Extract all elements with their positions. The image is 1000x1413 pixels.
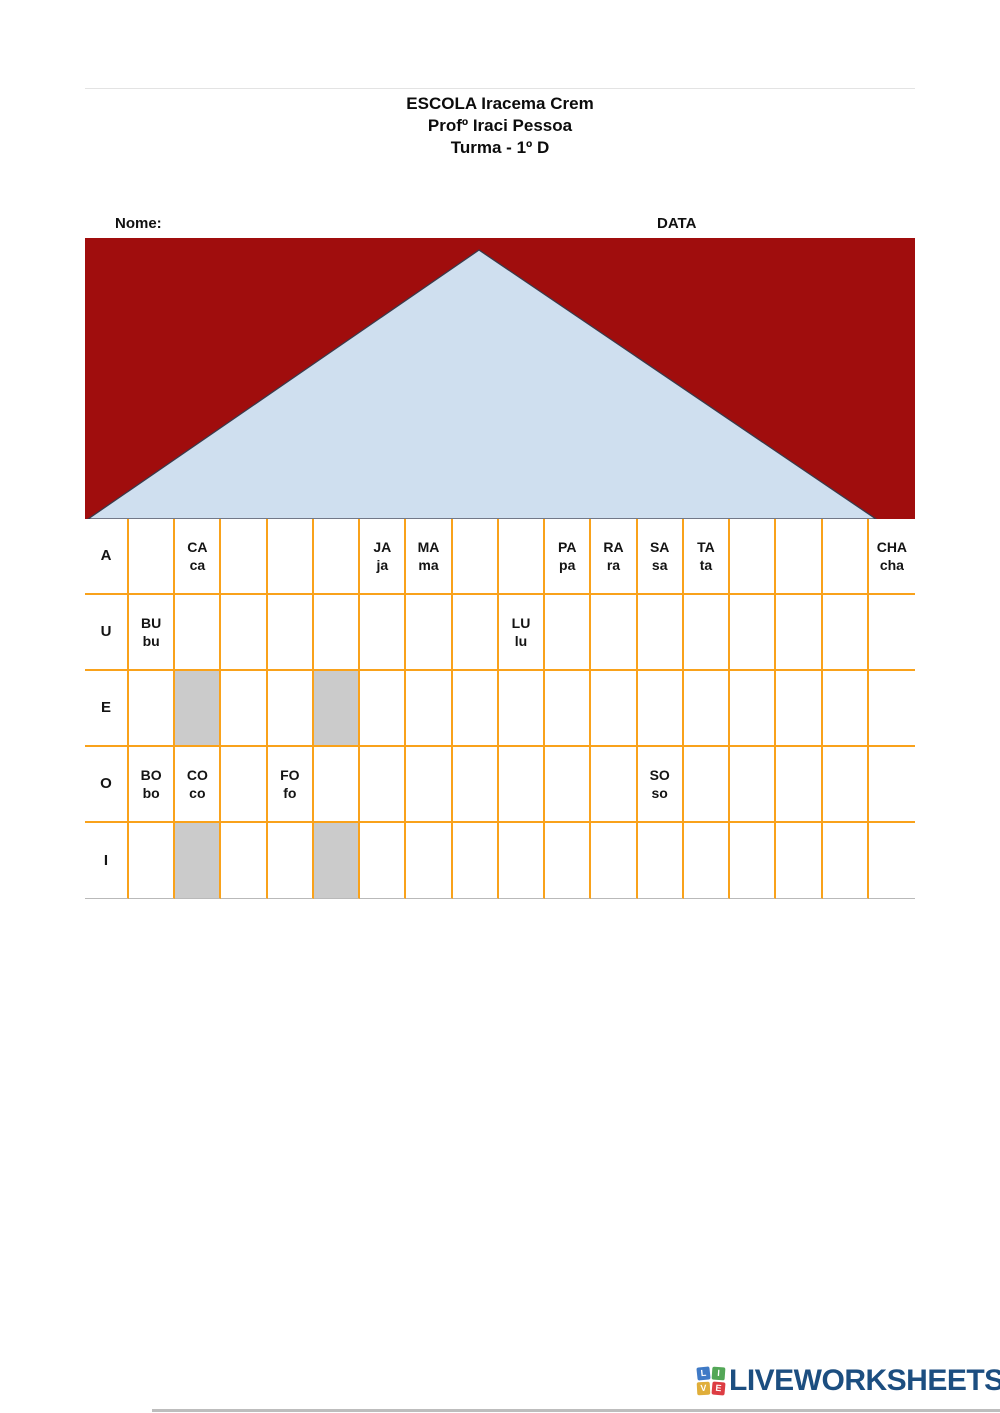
empty-answer-cell[interactable] <box>638 671 684 747</box>
empty-answer-cell[interactable] <box>823 747 869 823</box>
empty-answer-cell[interactable] <box>591 747 637 823</box>
syllable-text: TA <box>697 538 715 556</box>
logo-square-i: I <box>712 1366 726 1380</box>
highlight-cell[interactable] <box>314 823 360 899</box>
row-label-o: O <box>85 747 129 823</box>
empty-answer-cell[interactable] <box>453 519 499 595</box>
empty-answer-cell[interactable] <box>360 595 406 671</box>
logo-square-e: E <box>711 1381 725 1395</box>
empty-answer-cell[interactable] <box>869 823 915 899</box>
syllable-text: FO <box>280 766 299 784</box>
syllable-text: sa <box>652 556 668 574</box>
empty-answer-cell[interactable] <box>684 823 730 899</box>
empty-answer-cell[interactable] <box>406 595 452 671</box>
name-label: Nome: <box>115 215 162 232</box>
empty-answer-cell[interactable] <box>545 747 591 823</box>
empty-answer-cell[interactable] <box>869 595 915 671</box>
row-label-a: A <box>85 519 129 595</box>
row-label-e: E <box>85 671 129 747</box>
empty-answer-cell[interactable] <box>591 823 637 899</box>
bottom-edge-strip <box>152 1409 1000 1412</box>
syllable-text: CHA <box>877 538 907 556</box>
empty-answer-cell[interactable] <box>823 519 869 595</box>
empty-answer-cell[interactable] <box>453 747 499 823</box>
empty-answer-cell[interactable] <box>453 595 499 671</box>
worksheet-sheet: ESCOLA Iracema Crem Profº Iraci Pessoa T… <box>85 88 915 901</box>
empty-answer-cell[interactable] <box>545 595 591 671</box>
empty-answer-cell[interactable] <box>638 595 684 671</box>
syllable-cell-sa: SAsa <box>638 519 684 595</box>
empty-answer-cell[interactable] <box>499 671 545 747</box>
empty-answer-cell[interactable] <box>776 747 822 823</box>
liveworksheets-icon: LIVE <box>697 1367 726 1396</box>
empty-answer-cell[interactable] <box>360 747 406 823</box>
empty-answer-cell[interactable] <box>175 595 221 671</box>
row-label-u: U <box>85 595 129 671</box>
empty-answer-cell[interactable] <box>314 519 360 595</box>
empty-answer-cell[interactable] <box>221 595 267 671</box>
syllable-text: co <box>189 784 205 802</box>
row-label-i: I <box>85 823 129 899</box>
empty-answer-cell[interactable] <box>730 747 776 823</box>
empty-answer-cell[interactable] <box>360 671 406 747</box>
header-line-class: Turma - 1º D <box>85 137 915 159</box>
empty-answer-cell[interactable] <box>591 671 637 747</box>
liveworksheets-wordmark: LIVEWORKSHEETS <box>729 1366 1000 1396</box>
syllable-cell-ta: TAta <box>684 519 730 595</box>
roof-triangle-icon <box>85 238 915 519</box>
syllable-cell-bu: BUbu <box>129 595 175 671</box>
liveworksheets-logo[interactable]: LIVE LIVEWORKSHEETS <box>697 1366 1000 1396</box>
empty-answer-cell[interactable] <box>730 823 776 899</box>
syllable-text: ja <box>376 556 388 574</box>
school-header: ESCOLA Iracema Crem Profº Iraci Pessoa T… <box>85 93 915 159</box>
syllable-text: lu <box>515 632 527 650</box>
syllable-text: pa <box>559 556 575 574</box>
empty-answer-cell[interactable] <box>591 595 637 671</box>
empty-answer-cell[interactable] <box>499 519 545 595</box>
syllable-text: MA <box>418 538 440 556</box>
empty-answer-cell[interactable] <box>823 823 869 899</box>
syllable-table: ACAcaJAjaMAmaPApaRAraSAsaTAtaCHAchaUBUbu… <box>85 519 915 899</box>
empty-answer-cell[interactable] <box>268 519 314 595</box>
empty-answer-cell[interactable] <box>221 823 267 899</box>
empty-answer-cell[interactable] <box>499 747 545 823</box>
syllable-cell-ja: JAja <box>360 519 406 595</box>
empty-answer-cell[interactable] <box>406 747 452 823</box>
empty-answer-cell[interactable] <box>869 747 915 823</box>
empty-answer-cell[interactable] <box>730 595 776 671</box>
syllable-text: ma <box>418 556 438 574</box>
roof-banner <box>85 238 915 519</box>
syllable-text: LU <box>512 614 531 632</box>
syllable-cell-ra: RAra <box>591 519 637 595</box>
empty-answer-cell[interactable] <box>684 595 730 671</box>
syllable-text: JA <box>373 538 391 556</box>
empty-answer-cell[interactable] <box>406 823 452 899</box>
highlight-cell[interactable] <box>175 671 221 747</box>
empty-answer-cell[interactable] <box>776 519 822 595</box>
syllable-text: cha <box>880 556 904 574</box>
empty-answer-cell[interactable] <box>545 671 591 747</box>
highlight-cell[interactable] <box>314 671 360 747</box>
syllable-cell-fo: FOfo <box>268 747 314 823</box>
empty-answer-cell[interactable] <box>221 671 267 747</box>
syllable-text: ca <box>190 556 206 574</box>
empty-answer-cell[interactable] <box>268 823 314 899</box>
logo-square-l: L <box>696 1366 710 1380</box>
empty-answer-cell[interactable] <box>221 747 267 823</box>
empty-answer-cell[interactable] <box>730 519 776 595</box>
syllable-text: bo <box>143 784 160 802</box>
empty-answer-cell[interactable] <box>129 823 175 899</box>
empty-answer-cell[interactable] <box>684 671 730 747</box>
syllable-text: SA <box>650 538 669 556</box>
syllable-text: ta <box>700 556 712 574</box>
empty-answer-cell[interactable] <box>638 823 684 899</box>
worksheet-page: ESCOLA Iracema Crem Profº Iraci Pessoa T… <box>0 0 1000 1413</box>
empty-answer-cell[interactable] <box>268 671 314 747</box>
empty-answer-cell[interactable] <box>268 595 314 671</box>
syllable-text: fo <box>283 784 296 802</box>
syllable-cell-bo: BObo <box>129 747 175 823</box>
header-line-school: ESCOLA Iracema Crem <box>85 93 915 115</box>
empty-answer-cell[interactable] <box>869 671 915 747</box>
empty-answer-cell[interactable] <box>730 671 776 747</box>
empty-answer-cell[interactable] <box>314 747 360 823</box>
syllable-text: PA <box>558 538 576 556</box>
syllable-text: ra <box>607 556 620 574</box>
syllable-cell-pa: PApa <box>545 519 591 595</box>
syllable-cell-co: COco <box>175 747 221 823</box>
empty-answer-cell[interactable] <box>453 671 499 747</box>
empty-answer-cell[interactable] <box>823 595 869 671</box>
syllable-cell-ca: CAca <box>175 519 221 595</box>
empty-answer-cell[interactable] <box>684 747 730 823</box>
empty-answer-cell[interactable] <box>221 519 267 595</box>
empty-answer-cell[interactable] <box>776 671 822 747</box>
syllable-text: BO <box>141 766 162 784</box>
empty-answer-cell[interactable] <box>129 519 175 595</box>
empty-answer-cell[interactable] <box>499 823 545 899</box>
empty-answer-cell[interactable] <box>406 671 452 747</box>
date-label: DATA <box>657 215 696 232</box>
empty-answer-cell[interactable] <box>545 823 591 899</box>
syllable-cell-lu: LUlu <box>499 595 545 671</box>
empty-answer-cell[interactable] <box>776 823 822 899</box>
syllable-text: CO <box>187 766 208 784</box>
syllable-text: bu <box>143 632 160 650</box>
highlight-cell[interactable] <box>175 823 221 899</box>
empty-answer-cell[interactable] <box>453 823 499 899</box>
syllable-cell-cha: CHAcha <box>869 519 915 595</box>
syllable-text: BU <box>141 614 161 632</box>
syllable-cell-ma: MAma <box>406 519 452 595</box>
syllable-text: SO <box>650 766 670 784</box>
empty-answer-cell[interactable] <box>314 595 360 671</box>
syllable-cell-so: SOso <box>638 747 684 823</box>
syllable-text: RA <box>603 538 623 556</box>
empty-answer-cell[interactable] <box>823 671 869 747</box>
header-line-teacher: Profº Iraci Pessoa <box>85 115 915 137</box>
logo-square-v: V <box>697 1381 711 1395</box>
empty-answer-cell[interactable] <box>129 671 175 747</box>
syllable-text: CA <box>187 538 207 556</box>
syllable-text: so <box>652 784 668 802</box>
empty-answer-cell[interactable] <box>360 823 406 899</box>
empty-answer-cell[interactable] <box>776 595 822 671</box>
